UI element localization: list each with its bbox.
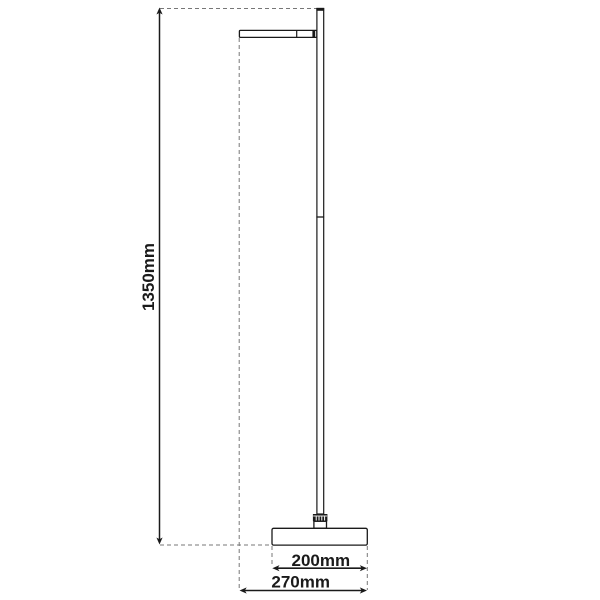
svg-text:200mm: 200mm	[291, 551, 350, 570]
svg-text:1350mm: 1350mm	[139, 243, 158, 311]
svg-text:270mm: 270mm	[271, 573, 330, 592]
